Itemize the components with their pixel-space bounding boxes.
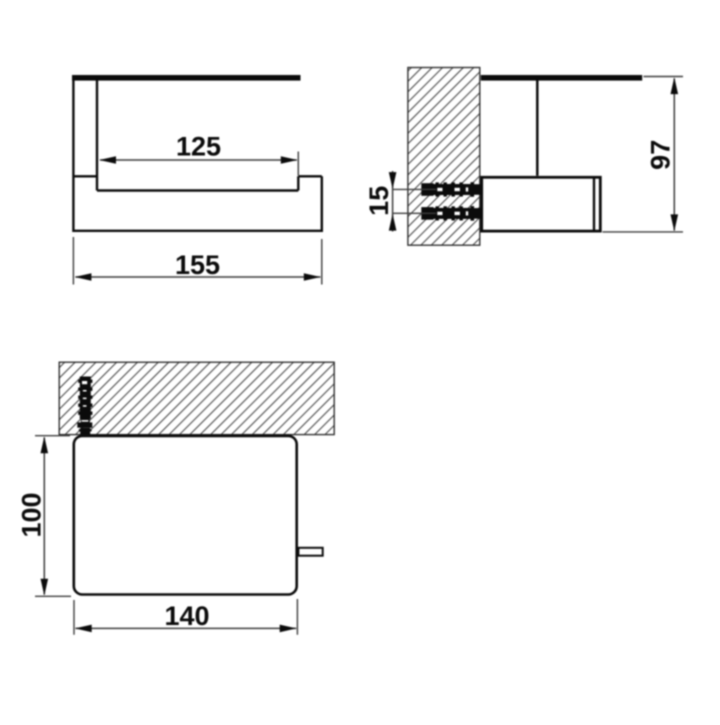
svg-text:125: 125 (176, 132, 221, 162)
svg-text:15: 15 (364, 186, 394, 216)
svg-text:140: 140 (164, 601, 209, 631)
svg-text:97: 97 (646, 140, 676, 170)
svg-text:155: 155 (175, 250, 220, 280)
svg-text:100: 100 (17, 492, 47, 537)
